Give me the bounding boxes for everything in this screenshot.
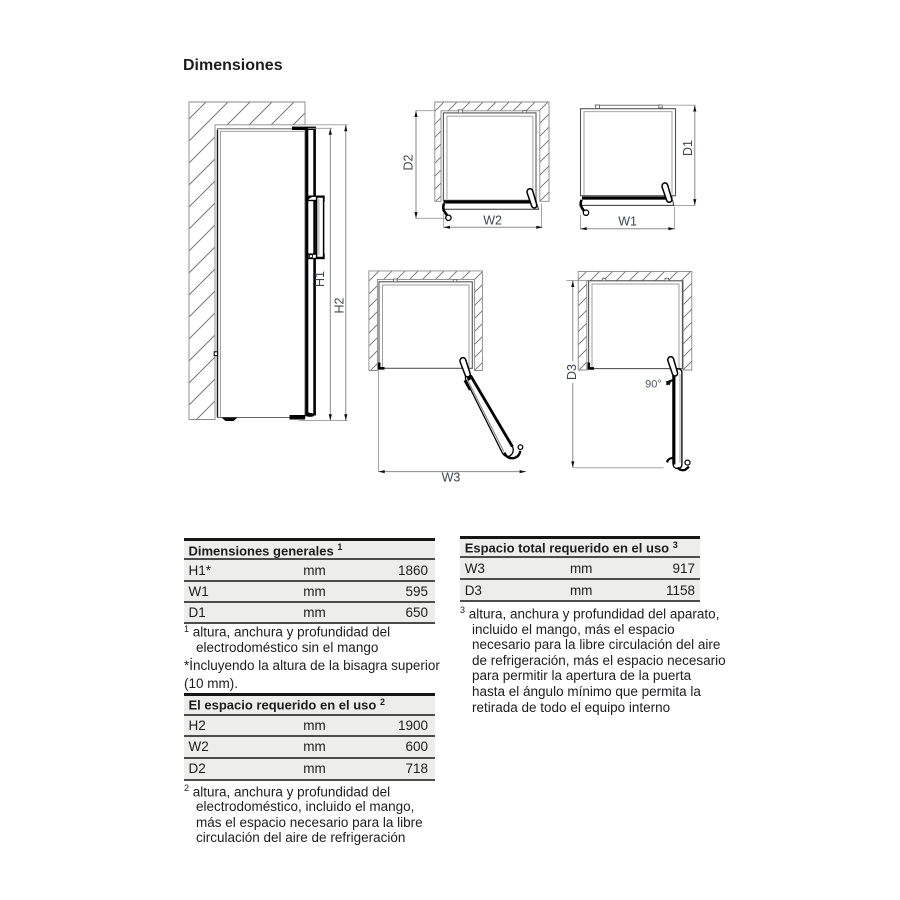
svg-text:90°: 90°: [645, 379, 662, 391]
svg-text:H2: H2: [333, 297, 347, 313]
svg-text:D1: D1: [681, 140, 695, 156]
svg-text:W2: W2: [483, 214, 502, 228]
svg-text:W3: W3: [442, 471, 461, 485]
svg-text:D2: D2: [402, 154, 416, 170]
svg-text:W1: W1: [618, 215, 637, 229]
svg-text:H1: H1: [313, 271, 327, 287]
svg-text:D3: D3: [565, 364, 579, 380]
